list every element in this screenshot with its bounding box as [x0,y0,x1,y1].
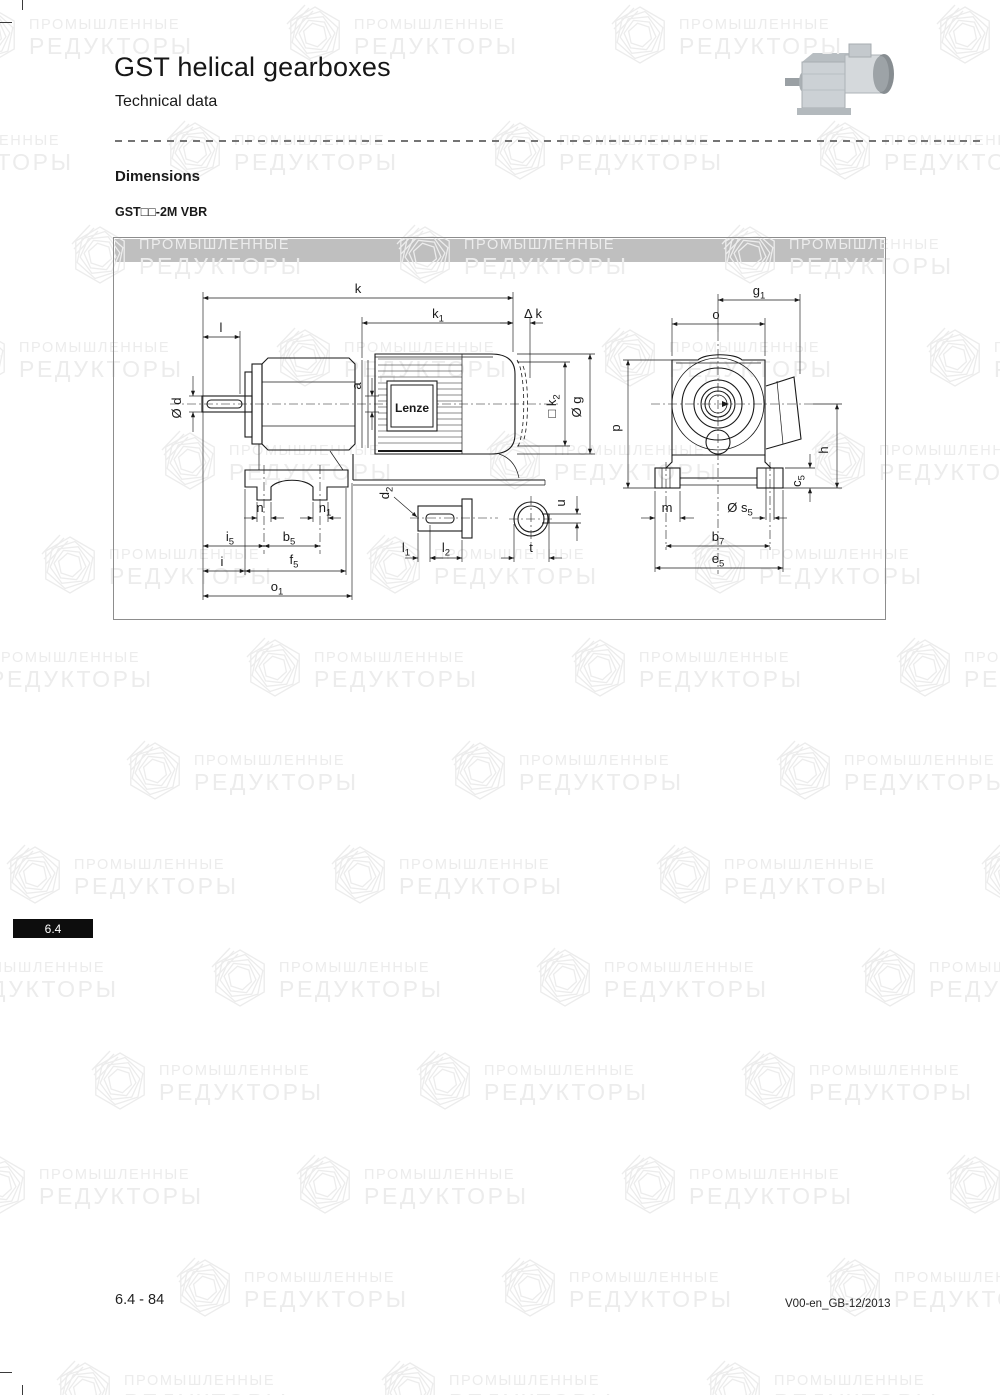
watermark: ПРОМЫШЛЕННЫЕРЕДУКТОРЫ [175,1255,409,1321]
shaft-pointer [722,401,729,407]
watermark-text: ПРОМЫШЛЕННЫЕРЕДУКТОРЫ [844,738,1000,795]
catalog-page: ПРОМЫШЛЕННЫЕРЕДУКТОРЫПРОМЫШЛЕННЫЕРЕДУКТО… [0,0,1000,1395]
hex-spiral-logo [925,325,985,391]
watermark-line1: ПРОМЫШЛЕННЫЕ [354,17,519,34]
watermark-line1: ПРОМЫШЛЕННЫЕ [879,443,1000,460]
watermark-line1: ПРОМЫШЛЕННЫЕ [964,650,1000,667]
dim-label-b7: b7 [712,529,725,548]
crop-mark [0,1372,12,1373]
watermark-line1: ПРОМЫШЛЕННЫЕ [519,753,684,770]
dim-label-p: p [608,424,623,431]
watermark-line1: ПРОМЫШЛЕННЫЕ [364,1167,529,1184]
watermark-line2: РЕДУКТОРЫ [364,1184,529,1210]
watermark-line1: ПРОМЫШЛЕННЫЕ [994,340,1000,357]
watermark-text: ПРОМЫШЛЕННЫЕРЕДУКТОРЫ [449,1358,614,1395]
watermark-line2: РЕДУКТОРЫ [449,1390,614,1395]
watermark: ПРОМЫШЛЕННЫЕРЕДУКТОРЫ [490,118,724,184]
watermark-line1: ПРОМЫШЛЕННЫЕ [569,1270,734,1287]
product-photo-gearmotor [783,38,908,120]
watermark-line1: ПРОМЫШЛЕННЫЕ [449,1373,614,1390]
dim-label-k1: k1 [432,306,444,325]
hex-spiral-logo [295,1152,355,1218]
watermark-line1: ПРОМЫШЛЕННЫЕ [639,650,804,667]
watermark-line1: ПРОМЫШЛЕННЫЕ [0,650,154,667]
watermark-text: ПРОМЫШЛЕННЫЕРЕДУКТОРЫ [929,945,1000,1002]
watermark-text: ПРОМЫШЛЕННЫЕРЕДУКТОРЫ [774,1358,939,1395]
watermark-line2: РЕДУКТОРЫ [879,460,1000,486]
dim-label-g: Ø g [569,397,584,418]
watermark: ПРОМЫШЛЕННЫЕРЕДУКТОРЫ [0,945,119,1011]
crop-mark [22,1385,23,1395]
watermark-line2: РЕДУКТОРЫ [929,977,1000,1003]
watermark-line1: ПРОМЫШЛЕННЫЕ [679,17,844,34]
watermark-text: ПРОМЫШЛЕННЫЕРЕДУКТОРЫ [74,842,239,899]
watermark-line2: РЕДУКТОРЫ [559,150,724,176]
dim-label-n: n [256,500,263,515]
watermark-line1: ПРОМЫШЛЕННЫЕ [194,753,359,770]
watermark: ПРОМЫШЛЕННЫЕРЕДУКТОРЫ [945,1152,1000,1218]
watermark-text: ПРОМЫШЛЕННЫЕРЕДУКТОРЫ [604,945,769,1002]
chapter-tab: 6.4 [13,919,93,938]
dimension-labels: k k1 Δ k l Ø d a □ k2 Ø g g1 o p h c5 m … [169,281,831,598]
crop-mark [22,0,23,10]
watermark-line1: ПРОМЫШЛЕННЫЕ [844,753,1000,770]
watermark-text: ПРОМЫШЛЕННЫЕРЕДУКТОРЫ [569,1255,734,1312]
watermark-line1: ПРОМЫШЛЕННЫЕ [484,1063,649,1080]
dim-label-s5: Ø s5 [727,500,753,519]
hex-spiral-logo [0,325,10,391]
hex-spiral-logo [40,532,100,598]
watermark: ПРОМЫШЛЕННЫЕРЕДУКТОРЫ [895,635,1000,701]
dim-label-m: m [662,500,673,515]
watermark-line2: РЕДУКТОРЫ [774,1390,939,1395]
watermark: ПРОМЫШЛЕННЫЕРЕДУКТОРЫ [535,945,769,1011]
chapter-tab-label: 6.4 [45,922,62,936]
dim-label-h: h [816,446,831,453]
watermark: ПРОМЫШЛЕННЫЕРЕДУКТОРЫ [980,842,1000,908]
watermark: ПРОМЫШЛЕННЫЕРЕДУКТОРЫ [380,1358,614,1395]
side-view: Lenze [202,354,545,500]
dashed-separator [115,140,983,142]
hex-spiral-logo [570,635,630,701]
watermark-text: ПРОМЫШЛЕННЫЕРЕДУКТОРЫ [159,1048,324,1105]
page-subtitle: Technical data [115,93,217,111]
watermark-text: ПРОМЫШЛЕННЫЕРЕДУКТОРЫ [484,1048,649,1105]
watermark-text: ПРОМЫШЛЕННЫЕРЕДУКТОРЫ [29,2,194,59]
watermark: ПРОМЫШЛЕННЫЕРЕДУКТОРЫ [740,1048,974,1114]
watermark: ПРОМЫШЛЕННЫЕРЕДУКТОРЫ [0,635,154,701]
watermark-line2: РЕДУКТОРЫ [519,770,684,796]
hex-spiral-logo [0,1152,30,1218]
dim-label-k2: □ k2 [544,394,563,417]
hex-spiral-logo [860,945,920,1011]
hex-spiral-logo [450,738,510,804]
watermark: ПРОМЫШЛЕННЫЕРЕДУКТОРЫ [0,118,74,184]
watermark: ПРОМЫШЛЕННЫЕРЕДУКТОРЫ [415,1048,649,1114]
hex-spiral-logo [980,842,1000,908]
watermark: ПРОМЫШЛЕННЫЕРЕДУКТОРЫ [860,945,1000,1011]
watermark-line2: РЕДУКТОРЫ [74,874,239,900]
watermark-line2: РЕДУКТОРЫ [484,1080,649,1106]
watermark-line1: ПРОМЫШЛЕННЫЕ [929,960,1000,977]
watermark: ПРОМЫШЛЕННЫЕРЕДУКТОРЫ [450,738,684,804]
dim-label-n1: n1 [319,500,332,519]
hex-spiral-logo [175,1255,235,1321]
watermark-line2: РЕДУКТОРЫ [569,1287,734,1313]
watermark-text: ПРОМЫШЛЕННЫЕРЕДУКТОРЫ [0,118,74,175]
hex-spiral-logo [825,1255,885,1321]
dim-label-c5: c5 [789,475,808,487]
watermark-line1: ПРОМЫШЛЕННЫЕ [279,960,444,977]
dim-label-u: u [553,499,568,506]
watermark: ПРОМЫШЛЕННЫЕРЕДУКТОРЫ [935,2,1000,68]
watermark-line2: РЕДУКТОРЫ [39,1184,204,1210]
dim-label-e5: e5 [712,551,725,570]
hex-spiral-logo [210,945,270,1011]
watermark: ПРОМЫШЛЕННЫЕРЕДУКТОРЫ [125,738,359,804]
watermark: ПРОМЫШЛЕННЫЕРЕДУКТОРЫ [500,1255,734,1321]
dimension-drawing: Lenze [113,262,886,620]
watermark-line2: РЕДУКТОРЫ [994,357,1000,383]
watermark: ПРОМЫШЛЕННЫЕРЕДУКТОРЫ [815,118,1000,184]
photo-housing [802,62,845,108]
dim-label-i5: i5 [226,529,234,548]
watermark-line2: РЕДУКТОРЫ [894,1287,1000,1313]
dim-label-i: i [221,554,224,569]
watermark-text: ПРОМЫШЛЕННЫЕРЕДУКТОРЫ [0,635,154,692]
photo-terminal-box [849,44,871,57]
watermark-text: ПРОМЫШЛЕННЫЕРЕДУКТОРЫ [194,738,359,795]
watermark: ПРОМЫШЛЕННЫЕРЕДУКТОРЫ [295,1152,529,1218]
dim-label-o1: o1 [271,579,284,598]
watermark-line2: РЕДУКТОРЫ [314,667,479,693]
page-title: GST helical gearboxes [114,52,391,83]
dimension-lines [189,292,842,600]
watermark-line1: ПРОМЫШЛЕННЫЕ [39,1167,204,1184]
watermark-line1: ПРОМЫШЛЕННЫЕ [124,1373,289,1390]
watermark-text: ПРОМЫШЛЕННЫЕРЕДУКТОРЫ [0,945,119,1002]
watermark-line2: РЕДУКТОРЫ [809,1080,974,1106]
watermark-text: ПРОМЫШЛЕННЫЕРЕДУКТОРЫ [124,1358,289,1395]
watermark: ПРОМЫШЛЕННЫЕРЕДУКТОРЫ [925,325,1000,391]
watermark-line1: ПРОМЫШЛЕННЫЕ [244,1270,409,1287]
watermark-text: ПРОМЫШЛЕННЫЕРЕДУКТОРЫ [519,738,684,795]
foot-plate [245,470,348,500]
photo-base [797,108,851,115]
watermark: ПРОМЫШЛЕННЫЕРЕДУКТОРЫ [0,1152,204,1218]
watermark-text: ПРОМЫШЛЕННЫЕРЕДУКТОРЫ [399,842,564,899]
watermark-line2: РЕДУКТОРЫ [399,874,564,900]
dim-label-d: Ø d [169,398,184,419]
hex-spiral-logo [330,842,390,908]
watermark-text: ПРОМЫШЛЕННЫЕРЕДУКТОРЫ [559,118,724,175]
watermark-line1: ПРОМЫШЛЕННЫЕ [809,1063,974,1080]
hex-spiral-logo [90,1048,150,1114]
hex-spiral-logo [740,1048,800,1114]
watermark-line1: ПРОМЫШЛЕННЫЕ [0,960,119,977]
watermark-line2: РЕДУКТОРЫ [689,1184,854,1210]
watermark-line1: ПРОМЫШЛЕННЫЕ [314,650,479,667]
watermark-text: ПРОМЫШЛЕННЫЕРЕДУКТОРЫ [314,635,479,692]
hex-spiral-logo [655,842,715,908]
hex-spiral-logo [620,1152,680,1218]
dim-label-l1: l1 [402,540,410,559]
watermark-line1: ПРОМЫШЛЕННЫЕ [774,1373,939,1390]
watermark: ПРОМЫШЛЕННЫЕРЕДУКТОРЫ [570,635,804,701]
watermark-line1: ПРОМЫШЛЕННЫЕ [399,857,564,874]
hex-spiral-logo [5,842,65,908]
watermark-line2: РЕДУКТОРЫ [604,977,769,1003]
section-heading: Dimensions [115,168,200,185]
front-view [655,355,801,520]
watermark: ПРОМЫШЛЕННЫЕРЕДУКТОРЫ [825,1255,1000,1321]
hex-spiral-logo [775,738,835,804]
watermark-text: ПРОМЫШЛЕННЫЕРЕДУКТОРЫ [724,842,889,899]
photo-fan-ring [873,56,889,92]
watermark-line2: РЕДУКТОРЫ [724,874,889,900]
bearing-flange [245,372,252,437]
watermark-line1: ПРОМЫШЛЕННЫЕ [724,857,889,874]
dim-label-l2: l2 [442,540,450,559]
dim-label-b5: b5 [283,529,296,548]
dim-label-o: o [712,307,719,322]
watermark-line2: РЕДУКТОРЫ [124,1390,289,1395]
watermark-line2: РЕДУКТОРЫ [884,150,1000,176]
watermark-text: ПРОМЫШЛЕННЫЕРЕДУКТОРЫ [884,118,1000,175]
hex-spiral-logo [125,738,185,804]
watermark-line1: ПРОМЫШЛЕННЫЕ [689,1167,854,1184]
watermark-line2: РЕДУКТОРЫ [234,150,399,176]
hex-spiral-logo [705,1358,765,1395]
watermark: ПРОМЫШЛЕННЫЕРЕДУКТОРЫ [55,1358,289,1395]
model-designation: GST□□-2M VBR [115,205,207,219]
watermark-line1: ПРОМЫШЛЕННЫЕ [29,17,194,34]
lenze-logo: Lenze [395,401,429,415]
watermark-line2: РЕДУКТОРЫ [279,977,444,1003]
crop-mark [0,22,12,23]
terminal-box [766,377,801,449]
watermark-line2: РЕДУКТОРЫ [639,667,804,693]
watermark-text: ПРОМЫШЛЕННЫЕРЕДУКТОРЫ [964,635,1000,692]
watermark: ПРОМЫШЛЕННЫЕРЕДУКТОРЫ [655,842,889,908]
dim-label-g1: g1 [753,283,766,302]
hex-spiral-logo [935,2,995,68]
watermark-line2: РЕДУКТОРЫ [0,977,119,1003]
watermark-line2: РЕДУКТОРЫ [964,667,1000,693]
watermark: ПРОМЫШЛЕННЫЕРЕДУКТОРЫ [705,1358,939,1395]
hex-spiral-logo [0,2,20,68]
watermark-text: ПРОМЫШЛЕННЫЕРЕДУКТОРЫ [994,325,1000,382]
watermark-line2: РЕДУКТОРЫ [194,770,359,796]
watermark: ПРОМЫШЛЕННЫЕРЕДУКТОРЫ [245,635,479,701]
watermark-line2: РЕДУКТОРЫ [0,150,74,176]
watermark: ПРОМЫШЛЕННЫЕРЕДУКТОРЫ [330,842,564,908]
watermark-line1: ПРОМЫШЛЕННЫЕ [74,857,239,874]
dim-label-f5: f5 [290,552,299,571]
hex-spiral-logo [610,2,670,68]
watermark-line1: ПРОМЫШЛЕННЫЕ [894,1270,1000,1287]
shaft-end-detail [418,499,472,538]
watermark-line2: РЕДУКТОРЫ [244,1287,409,1313]
hex-spiral-logo [895,635,955,701]
watermark: ПРОМЫШЛЕННЫЕРЕДУКТОРЫ [90,1048,324,1114]
hex-spiral-logo [245,635,305,701]
watermark-text: ПРОМЫШЛЕННЫЕРЕДУКТОРЫ [244,1255,409,1312]
watermark: ПРОМЫШЛЕННЫЕРЕДУКТОРЫ [620,1152,854,1218]
dim-label-d2: d2 [377,487,396,500]
watermark: ПРОМЫШЛЕННЫЕРЕДУКТОРЫ [5,842,239,908]
dim-label-t: t [529,540,533,555]
watermark-line2: РЕДУКТОРЫ [844,770,1000,796]
hex-spiral-logo [380,1358,440,1395]
watermark-text: ПРОМЫШЛЕННЫЕРЕДУКТОРЫ [639,635,804,692]
watermark-text: ПРОМЫШЛЕННЫЕРЕДУКТОРЫ [354,2,519,59]
hex-spiral-logo [55,1358,115,1395]
watermark-line1: ПРОМЫШЛЕННЫЕ [159,1063,324,1080]
watermark: ПРОМЫШЛЕННЫЕРЕДУКТОРЫ [775,738,1000,804]
watermark-line1: ПРОМЫШЛЕННЫЕ [0,133,74,150]
watermark-text: ПРОМЫШЛЕННЫЕРЕДУКТОРЫ [279,945,444,1002]
hex-spiral-logo [415,1048,475,1114]
front-foot-left [655,468,680,488]
watermark-text: ПРОМЫШЛЕННЫЕРЕДУКТОРЫ [39,1152,204,1209]
footer-page-number: 6.4 - 84 [115,1292,164,1308]
dim-label-dk: Δ k [524,306,543,321]
watermark-text: ПРОМЫШЛЕННЫЕРЕДУКТОРЫ [689,1152,854,1209]
watermark-text: ПРОМЫШЛЕННЫЕРЕДУКТОРЫ [809,1048,974,1105]
hex-spiral-logo [500,1255,560,1321]
watermark-line2: РЕДУКТОРЫ [159,1080,324,1106]
watermark-text: ПРОМЫШЛЕННЫЕРЕДУКТОРЫ [364,1152,529,1209]
footer-doc-reference: V00-en_GB-12/2013 [785,1298,891,1310]
watermark-text: ПРОМЫШЛЕННЫЕРЕДУКТОРЫ [894,1255,1000,1312]
dim-label-k: k [355,281,362,296]
hex-spiral-logo [490,118,550,184]
hex-spiral-logo [815,118,875,184]
watermark-text: ПРОМЫШЛЕННЫЕРЕДУКТОРЫ [234,118,399,175]
watermark: ПРОМЫШЛЕННЫЕРЕДУКТОРЫ [165,118,399,184]
watermark: ПРОМЫШЛЕННЫЕРЕДУКТОРЫ [210,945,444,1011]
watermark-line1: ПРОМЫШЛЕННЫЕ [604,960,769,977]
dim-label-a: a [349,382,364,390]
dim-label-l: l [220,320,223,335]
watermark-text: ПРОМЫШЛЕННЫЕРЕДУКТОРЫ [879,428,1000,485]
hex-spiral-logo [945,1152,1000,1218]
watermark-line2: РЕДУКТОРЫ [0,667,154,693]
hex-spiral-logo [535,945,595,1011]
